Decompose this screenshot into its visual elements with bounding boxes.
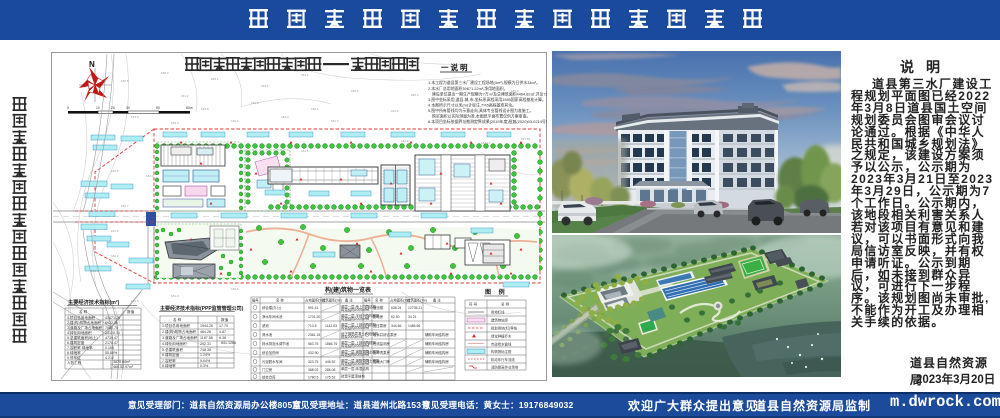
svg-text:砖混结构2000m³/d: 砖混结构2000m³/d (341, 343, 369, 348)
svg-text:砖混平屋顶结构: 砖混平屋顶结构 (341, 374, 365, 379)
svg-text:41671.26: 41671.26 (105, 316, 120, 320)
svg-text:368.02: 368.02 (308, 368, 318, 372)
svg-text:1142.83: 1142.83 (325, 324, 337, 328)
svg-text:3.图中坐标采用,道县.城-市-坐标系高程采用1985国家高: 3.图中坐标采用,道县.城-市-坐标系高程采用1985国家高程基准计算。 (428, 97, 546, 102)
svg-text:181.6: 181.6 (131, 299, 139, 303)
svg-text:34.21: 34.21 (408, 315, 417, 319)
svg-text:710.5: 710.5 (308, 324, 317, 328)
svg-text:638.24: 638.24 (391, 306, 401, 310)
svg-text:1866.76: 1866.76 (325, 342, 337, 346)
svg-text:181.5: 181.5 (301, 149, 309, 153)
svg-text:182.2: 182.2 (401, 139, 409, 143)
svg-text:62.50: 62.50 (391, 315, 400, 319)
svg-text:围墙大门等: 围墙大门等 (373, 359, 391, 364)
svg-text:图 例: 图 例 (485, 288, 508, 296)
svg-text:加压泵房: 加压泵房 (373, 323, 387, 328)
svg-text:182.1: 182.1 (311, 107, 319, 111)
svg-text:综合加药间: 综合加药间 (262, 350, 280, 355)
svg-text:2.建(构)筑物占地面积: 2.建(构)筑物占地面积 (67, 320, 102, 325)
svg-text:182.3: 182.3 (411, 93, 419, 97)
svg-text:183.6: 183.6 (261, 84, 269, 88)
svg-text:建设单位提出一期生产规模为7万m³及总建筑面积4464.82: 建设单位提出一期生产规模为7万m³及总建筑面积4464.82㎡,详见73土。 (432, 92, 547, 97)
svg-text:门卫房: 门卫房 (262, 367, 273, 372)
svg-text:建筑物轮廓: 建筑物轮廓 (491, 318, 509, 323)
svg-text:符 号: 符 号 (469, 302, 478, 307)
svg-text:9.停车位: 9.停车位 (67, 355, 81, 360)
svg-text:182.7: 182.7 (121, 204, 129, 208)
svg-text:机动车行车流线: 机动车行车流线 (491, 357, 515, 362)
svg-text:数值: 数值 (127, 309, 135, 314)
svg-text:181.9: 181.9 (391, 109, 399, 113)
svg-text:55.80%: 55.80% (105, 351, 118, 355)
svg-text:2361.15: 2361.15 (308, 333, 320, 337)
svg-text:2.本水厂总用地面积39671.22m²,净用地面积。: 2.本水厂总用地面积39671.22m²,净用地面积。 (428, 86, 508, 91)
svg-text:182.0: 182.0 (281, 115, 289, 119)
svg-text:净水车间水池: 净水车间水池 (262, 314, 283, 319)
svg-text:185.2: 185.2 (161, 71, 169, 75)
svg-text:值班楼: 值班楼 (373, 305, 384, 310)
svg-text:182.14: 182.14 (481, 141, 491, 145)
svg-text:182.5: 182.5 (121, 79, 129, 83)
svg-text:460.52.97m²: 460.52.97m² (113, 365, 134, 369)
svg-text:591.41: 591.41 (308, 306, 318, 310)
svg-text:6.建筑密度: 6.建筑密度 (67, 340, 85, 345)
svg-text:辅助车间结构房: 辅助车间结构房 (425, 359, 449, 364)
svg-text:反冲洗泵房: 反冲洗泵房 (373, 350, 391, 355)
svg-text:6922.30: 6922.30 (105, 321, 118, 325)
svg-text:1.本工程为道县第三水厂建设工程场地(3m²),规模为日供水: 1.本工程为道县第三水厂建设工程场地(3m²),规模为日供水34m³。 (428, 80, 540, 85)
svg-text:综合楼(办公): 综合楼(办公) (262, 305, 281, 310)
svg-text:1486.66: 1486.66 (408, 324, 420, 328)
svg-text:183.5: 183.5 (111, 169, 119, 173)
svg-text:4.绿化用地面积: 4.绿化用地面积 (67, 330, 92, 335)
svg-text:规划用地(红)界线: 规划用地(红)界线 (491, 326, 518, 331)
svg-text:辅助车间结构房: 辅助车间结构房 (425, 341, 449, 346)
svg-text:181.2: 181.2 (181, 94, 189, 98)
svg-text:183.4: 183.4 (511, 89, 519, 93)
svg-text:181.92: 181.92 (521, 137, 531, 141)
svg-text:50: 50 (156, 106, 160, 110)
svg-text:购买面积以实际测量为准,本图纸平面布置仅供方案审查。: 购买面积以实际测量为准,本图纸平面布置仅供方案审查。 (432, 114, 530, 119)
svg-text:1.24%: 1.24% (200, 353, 211, 357)
svg-text:841.1268: 841.1268 (221, 341, 236, 345)
svg-text:清水池: 清水池 (262, 332, 273, 337)
svg-text:1944.26: 1944.26 (200, 324, 213, 328)
svg-text:N: N (89, 60, 95, 69)
svg-text:绿化种植乔木: 绿化种植乔木 (491, 334, 512, 339)
svg-text:292.31: 292.31 (200, 342, 211, 346)
svg-text:183.2: 183.2 (301, 73, 309, 77)
svg-text:名 称: 名 称 (173, 317, 182, 322)
svg-text:8.绿地率: 8.绿地率 (162, 363, 176, 368)
svg-text:5.图中所有管线均为示意走向,具体专业管线设计图为准施工。: 5.图中所有管线均为示意走向,具体专业管线设计图为准施工。 (428, 108, 533, 113)
svg-text:构(建)筑物一览表: 构(建)筑物一览表 (325, 286, 372, 294)
svg-text:6.本项目坐标依据界址勘测定界成果(2019年度)批复(20: 6.本项目坐标依据界址勘测定界成果(2019年度)批复(2020)03-0214… (428, 119, 547, 124)
svg-text:6.建筑密度: 6.建筑密度 (162, 352, 180, 357)
svg-text:辅助车间结构房: 辅助车间结构房 (425, 332, 449, 337)
svg-text:2.建(构)筑物占地面积: 2.建(构)筑物占地面积 (162, 329, 197, 334)
svg-text:181.9: 181.9 (171, 294, 179, 298)
svg-text:一说明: 一说明 (441, 62, 470, 72)
svg-text:3.道路及广场占地面积: 3.道路及广场占地面积 (67, 325, 103, 330)
svg-text:4730.47: 4730.47 (105, 336, 118, 340)
svg-text:181.7: 181.7 (331, 119, 339, 123)
svg-text:2170.47: 2170.47 (105, 341, 118, 345)
svg-text:备 注: 备 注 (345, 298, 353, 303)
svg-text:名 称: 名 称 (79, 309, 88, 314)
svg-text:砖混结构2000m³/d: 砖混结构2000m³/d (341, 361, 369, 366)
svg-text:综合仓库: 综合仓库 (262, 375, 276, 380)
svg-text:辅助车间结构房: 辅助车间结构房 (425, 350, 449, 355)
svg-text:8.绿地率: 8.绿地率 (67, 350, 81, 355)
svg-text:1780.5: 1780.5 (308, 376, 318, 380)
svg-text:建筑面积(m²): 建筑面积(m²) (322, 298, 342, 303)
svg-text:432.90: 432.90 (308, 351, 318, 355)
svg-text:3.道路及广场占地面积: 3.道路及广场占地面积 (162, 335, 198, 340)
svg-text:7.容积率: 7.容积率 (162, 358, 176, 363)
svg-text:配电房: 配电房 (373, 314, 384, 319)
svg-text:183.3: 183.3 (171, 121, 179, 125)
svg-text:4.87: 4.87 (219, 330, 226, 334)
svg-text:563.76: 563.76 (308, 342, 318, 346)
svg-text:消防登高作业场地: 消防登高作业场地 (491, 365, 519, 370)
svg-text:20: 20 (111, 106, 115, 110)
svg-text:编号: 编号 (364, 298, 371, 303)
svg-text:748.36: 748.36 (200, 348, 211, 352)
svg-text:30: 30 (126, 106, 130, 110)
svg-text:构筑物标注框: 构筑物标注框 (491, 349, 512, 354)
svg-text:数值: 数值 (221, 317, 229, 322)
svg-text:0: 0 (67, 106, 69, 110)
svg-text:10: 10 (96, 106, 100, 110)
svg-text:备 注: 备 注 (433, 298, 441, 303)
svg-text:182.4: 182.4 (231, 287, 239, 291)
svg-text:182.6: 182.6 (351, 89, 359, 93)
svg-text:在线监测房: 在线监测房 (373, 341, 391, 346)
svg-text:主要经济技术指标(m²): 主要经济技术指标(m²) (68, 298, 120, 306)
svg-text:184.6: 184.6 (131, 115, 139, 119)
svg-text:滤池: 滤池 (262, 323, 269, 328)
svg-text:184.1: 184.1 (211, 77, 219, 81)
svg-text:286.08: 286.08 (325, 368, 335, 372)
svg-text:182.4: 182.4 (146, 174, 154, 178)
svg-text:砖混结构2000m³/d: 砖混结构2000m³/d (341, 316, 369, 321)
svg-text:7.容积率 绿地率: 7.容积率 绿地率 (67, 345, 93, 350)
svg-text:182.9: 182.9 (251, 101, 259, 105)
svg-text:184.2: 184.2 (231, 119, 239, 123)
svg-text:3870.64m²: 3870.64m² (113, 360, 131, 364)
svg-text:80m: 80m (186, 106, 193, 110)
svg-text:12735.21: 12735.21 (408, 306, 422, 310)
svg-text:7060.70: 7060.70 (105, 326, 118, 330)
svg-text:砖混结构2000m³/d: 砖混结构2000m³/d (341, 325, 369, 330)
svg-text:砖混结构2000m³/d: 砖混结构2000m³/d (341, 352, 369, 357)
svg-text:编号: 编号 (252, 298, 259, 303)
svg-text:182.2: 182.2 (111, 254, 119, 258)
svg-text:23120.31: 23120.31 (105, 331, 120, 335)
svg-text:0.04%: 0.04% (200, 359, 211, 363)
svg-text:6.38: 6.38 (219, 336, 226, 340)
svg-text:市政给水管线: 市政给水管线 (491, 342, 512, 347)
svg-text:名 称: 名 称 (375, 298, 383, 303)
svg-text:1.项目总用地面积: 1.项目总用地面积 (162, 323, 191, 328)
svg-text:182.8: 182.8 (471, 119, 479, 123)
svg-text:1701.20: 1701.20 (308, 315, 320, 319)
svg-text:1187.58: 1187.58 (200, 336, 213, 340)
svg-text:4.绿化用地面积: 4.绿化用地面积 (162, 341, 187, 346)
svg-text:污泥脱水车间: 污泥脱水车间 (262, 359, 283, 364)
svg-text:建筑面积(m²): 建筑面积(m²) (407, 298, 427, 303)
svg-text:183.8: 183.8 (201, 107, 209, 111)
svg-text:5.总建筑面积(地上): 5.总建筑面积(地上) (67, 335, 98, 340)
svg-text:砖混结构2000m³/d: 砖混结构2000m³/d (341, 307, 369, 312)
svg-text:排水排泥水调节池: 排水排泥水调节池 (262, 341, 290, 346)
svg-text:181.8: 181.8 (111, 229, 119, 233)
svg-text:183.1: 183.1 (91, 269, 99, 273)
svg-text:464.26: 464.26 (200, 330, 211, 334)
svg-text:17.70: 17.70 (219, 324, 228, 328)
svg-text:4.本图所示尺寸以米(m)计标注,7%5高程基准其余。: 4.本图所示尺寸以米(m)计标注,7%5高程基准其余。 (428, 103, 516, 108)
svg-text:名 称: 名 称 (501, 302, 510, 307)
svg-text:名 称: 名 称 (276, 298, 284, 303)
svg-text:0.3%: 0.3% (200, 364, 209, 368)
svg-text:1.项目总用地面积: 1.项目总用地面积 (67, 315, 96, 320)
svg-text:323.75: 323.75 (308, 360, 318, 364)
svg-text:175.52: 175.52 (325, 376, 335, 380)
svg-text:人防工程: 人防工程 (67, 360, 82, 365)
svg-text:吸水井综合泵房: 吸水井综合泵房 (373, 332, 397, 337)
svg-text:主要经济技术指标(PPP监管管理公司): 主要经济技术指标(PPP监管管理公司) (160, 305, 244, 312)
svg-text:446.92: 446.92 (325, 360, 335, 364)
svg-text:用地红线: 用地红线 (491, 310, 505, 315)
svg-text:框架2000m³/d: 框架2000m³/d (341, 334, 362, 339)
svg-text:344.66: 344.66 (391, 324, 401, 328)
svg-text:单层一层,砖混结构: 单层一层,砖混结构 (341, 366, 370, 371)
svg-text:0.165: 0.165 (105, 346, 114, 350)
svg-text:5.总建筑面积: 5.总建筑面积 (162, 347, 183, 352)
